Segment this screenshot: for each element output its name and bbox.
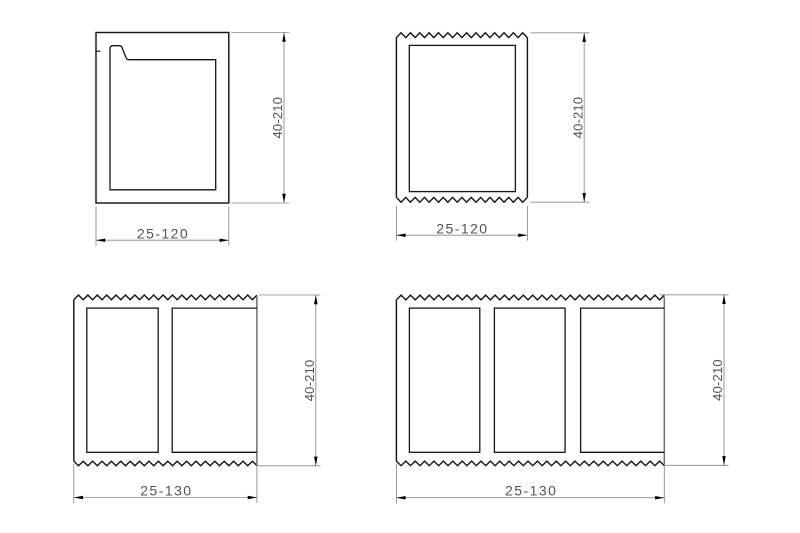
svg-text:25-130: 25-130 [505, 483, 557, 499]
svg-text:40-210: 40-210 [302, 360, 317, 402]
svg-text:25-120: 25-120 [436, 220, 488, 236]
svg-text:25-130: 25-130 [140, 483, 192, 499]
svg-text:25-120: 25-120 [137, 225, 189, 241]
svg-text:40-210: 40-210 [570, 97, 585, 139]
svg-text:40-210: 40-210 [270, 97, 285, 139]
svg-text:40-210: 40-210 [710, 359, 725, 401]
